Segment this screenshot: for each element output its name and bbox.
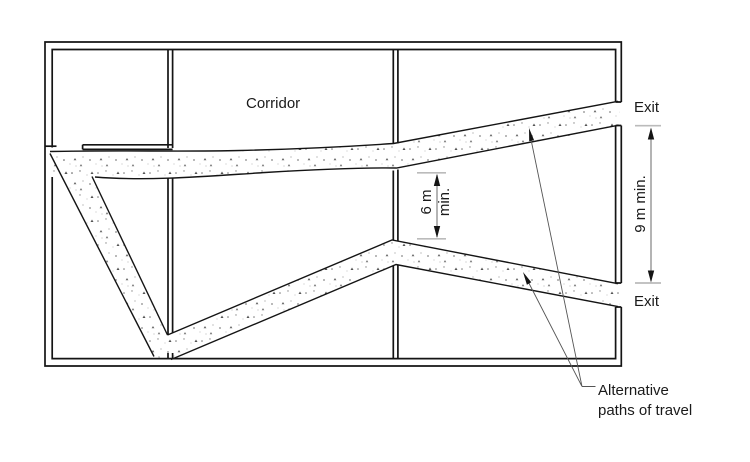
dimension-6m-qualifier: min. [436,188,453,216]
alt-paths-label-line1: Alternative [598,382,669,399]
corridor-label: Corridor [246,95,300,112]
dimension-6m-value: 6 m [418,189,435,214]
floor-plan-diagram: 6 m min. 9 m min. Corridor Exit Exit Alt… [0,0,750,462]
exit-top-label: Exit [634,99,660,116]
exit-bottom-label: Exit [634,293,660,310]
alt-paths-label-line2: paths of travel [598,402,692,419]
dimension-9m-label: 9 m min. [632,175,649,233]
